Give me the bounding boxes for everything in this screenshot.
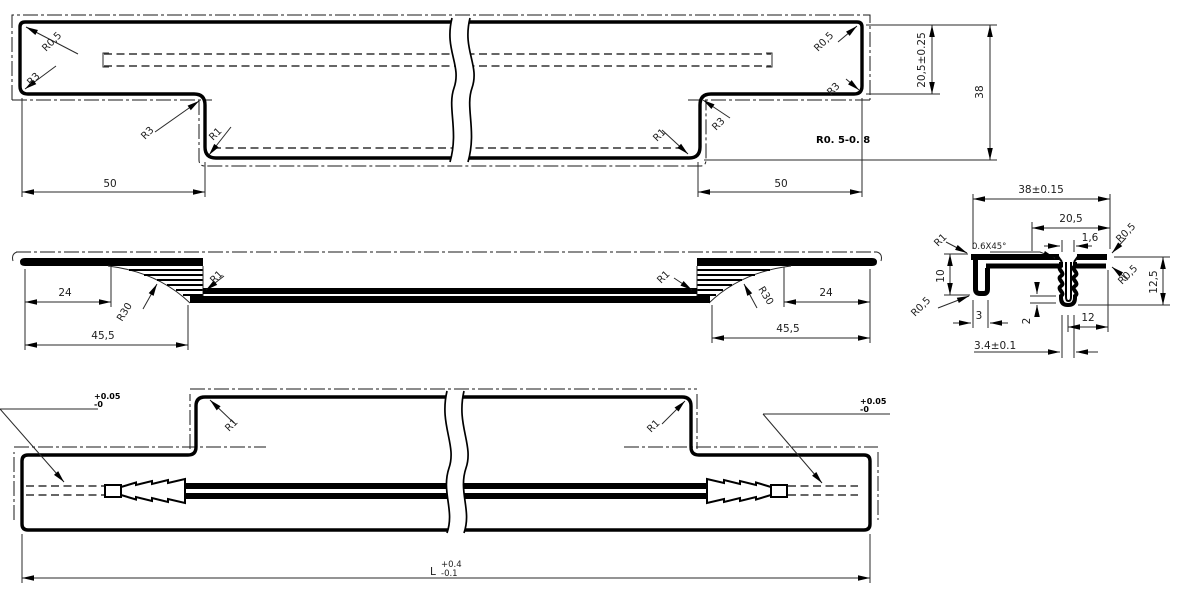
dim-section-slot: 1,6 bbox=[1082, 232, 1099, 244]
radius-label-r3-step-left: R3 bbox=[139, 125, 156, 142]
dim-section-overall: 38±0.15 bbox=[1018, 184, 1064, 196]
radius-label-r05-bottom-left: R0,5 bbox=[909, 295, 933, 319]
dim-section-leg: 10 bbox=[935, 269, 947, 282]
engineering-drawing-svg: 50 50 20,5±0.25 38 R0,5 R3 R3 R1 R0,5 R3… bbox=[0, 0, 1200, 590]
dim-section-flange: 20,5 bbox=[1059, 213, 1082, 225]
chamfer-note: 0.6X45° bbox=[972, 242, 1006, 252]
dim-end-height: 20,5±0.25 bbox=[916, 32, 928, 88]
dim-transition-right: 45,5 bbox=[776, 323, 799, 335]
radius-label-r1-front-left: R1 bbox=[208, 269, 225, 286]
front-view: R1 R1 R30 R30 24 45,5 24 45,5 bbox=[13, 252, 882, 350]
dim-section-offset: 12 bbox=[1081, 312, 1094, 324]
dim-flat-left: 24 bbox=[58, 287, 72, 299]
radius-label-r1-step-right: R1 bbox=[651, 127, 668, 144]
dim-section-depth: 12,5 bbox=[1148, 270, 1160, 293]
length-dim-label: L bbox=[430, 566, 436, 578]
radius-label-r1-bottom-left: R1 bbox=[223, 417, 240, 434]
radius-label-r30-right: R30 bbox=[755, 285, 775, 308]
dim-section-rib: 2 bbox=[1021, 318, 1033, 325]
radius-label-r05-mid-right: R0,5 bbox=[1116, 263, 1140, 287]
radius-label-r3-left: R3 bbox=[25, 71, 42, 88]
dim-right-end-length: 50 bbox=[774, 178, 787, 190]
radius-label-r3-step-right: R3 bbox=[710, 116, 727, 133]
bottom-view: +0.05 -0 +0.05 -0 R1 R1 L +0.4 -0.1 bbox=[0, 389, 890, 583]
length-dim-minus: -0.1 bbox=[441, 569, 458, 579]
dim-total-height: 38 bbox=[974, 85, 986, 98]
radius-label-r05-right: R0,5 bbox=[812, 30, 836, 54]
radius-label-r05-left: R0,5 bbox=[40, 30, 64, 54]
edge-radius-note: R0. 5-0. 8 bbox=[816, 135, 870, 146]
dim-section-hem: 3 bbox=[976, 310, 983, 322]
radius-label-r1-bottom-right: R1 bbox=[645, 418, 662, 435]
dim-flat-right: 24 bbox=[819, 287, 833, 299]
radius-label-r1-section: R1 bbox=[932, 232, 949, 249]
dim-transition-left: 45,5 bbox=[91, 330, 114, 342]
top-view: 50 50 20,5±0.25 38 R0,5 R3 R3 R1 R0,5 R3… bbox=[12, 15, 997, 197]
dim-section-channel: 3.4±0.1 bbox=[974, 340, 1016, 352]
radius-label-r30-left: R30 bbox=[115, 301, 135, 324]
radius-label-r1-step-left: R1 bbox=[207, 126, 224, 143]
tolerance-minus-right: -0 bbox=[860, 405, 869, 414]
tolerance-minus-left: -0 bbox=[94, 400, 103, 409]
section-view: 38±0.15 20,5 1,6 R0,5 R0,5 12,5 10 R1 0.… bbox=[909, 184, 1170, 358]
radius-label-r1-front-right: R1 bbox=[655, 269, 672, 286]
dim-left-end-length: 50 bbox=[103, 178, 116, 190]
radius-label-r05-top-right: R0,5 bbox=[1114, 221, 1138, 245]
cad-drawing-canvas: 50 50 20,5±0.25 38 R0,5 R3 R3 R1 R0,5 R3… bbox=[0, 0, 1200, 590]
